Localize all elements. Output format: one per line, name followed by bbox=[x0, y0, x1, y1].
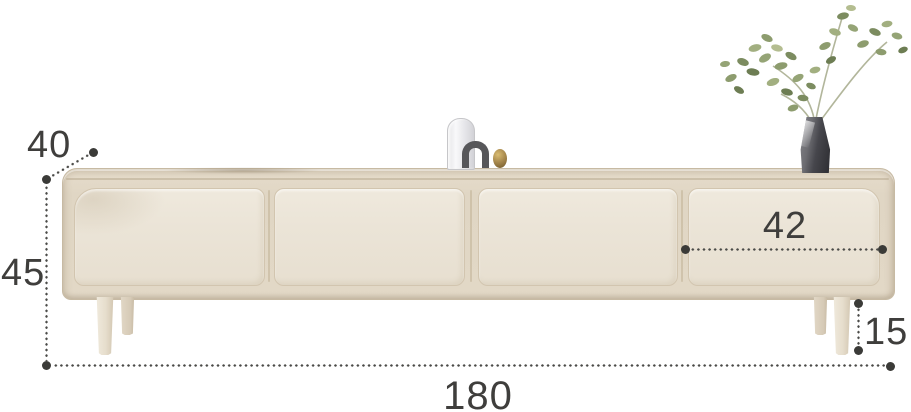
leg-rear-right bbox=[813, 297, 828, 335]
dim-leg-height-label: 15 bbox=[864, 313, 911, 351]
decor-arch-ornament bbox=[462, 141, 489, 168]
leg-front-right bbox=[833, 297, 851, 355]
drawer-front-2 bbox=[274, 188, 465, 286]
dim-drawer-left-dot bbox=[681, 245, 690, 254]
drawer-front-3 bbox=[478, 188, 678, 286]
cabinet-top-reflection bbox=[163, 167, 323, 174]
dim-height-label: 45 bbox=[1, 254, 45, 292]
dim-width-left-dot bbox=[42, 361, 51, 370]
dim-width-label: 180 bbox=[428, 377, 528, 412]
product-dimension-diagram: 40 45 180 42 15 bbox=[0, 0, 911, 412]
dim-height-line bbox=[45, 185, 48, 361]
dim-leg-top-dot bbox=[854, 299, 863, 308]
leg-front-left bbox=[96, 297, 114, 355]
dim-depth-end-dot bbox=[89, 148, 98, 157]
dim-leg-bottom-dot bbox=[854, 346, 863, 355]
drawer-front-1 bbox=[74, 188, 265, 286]
plant-leaves bbox=[720, 5, 909, 113]
cabinet-top-edge bbox=[66, 178, 889, 180]
drawer-seam bbox=[268, 190, 270, 282]
dim-drawer-width-line bbox=[690, 248, 878, 251]
drawer-seam bbox=[681, 190, 683, 282]
dim-width-right-dot bbox=[886, 362, 895, 371]
drawer-seam bbox=[470, 190, 472, 282]
leg-rear-left bbox=[120, 297, 135, 335]
decor-brass-egg bbox=[493, 149, 507, 168]
dim-drawer-right-dot bbox=[878, 245, 887, 254]
dim-corner-dot bbox=[42, 175, 51, 184]
dim-leg-height-line bbox=[857, 307, 860, 347]
dim-width-line bbox=[53, 364, 885, 367]
dim-drawer-width-label: 42 bbox=[753, 207, 817, 245]
dim-depth-label: 40 bbox=[27, 126, 71, 164]
